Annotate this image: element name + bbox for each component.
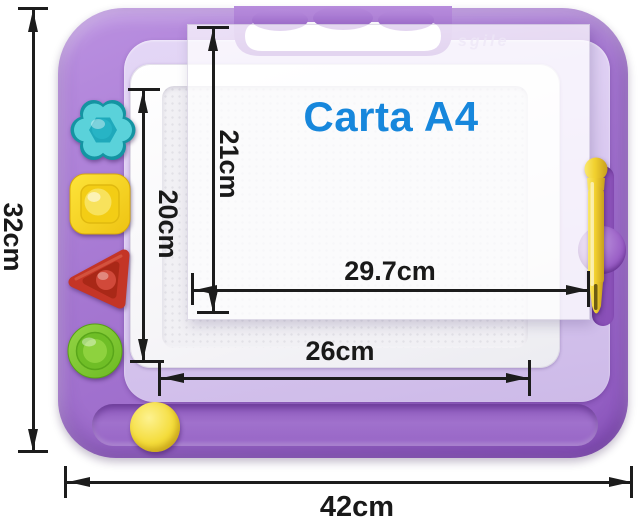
square-stamp-icon [68,172,132,236]
pen-cap-ball [585,158,608,181]
arrow-down-icon [28,429,38,451]
a4-sheet-title: Carta A4 [268,94,514,144]
a4-sheet-overlay [187,24,590,320]
arrow-up-icon [28,10,38,32]
circle-stamp-icon [66,322,124,380]
arrow-right-icon [609,477,631,487]
stylus-pen [577,156,613,324]
product-dimension-image: sgile [0,0,640,520]
tick [64,466,67,498]
dimension-line [32,9,35,451]
eraser-slider-knob [130,402,180,452]
tick [18,7,48,10]
arrow-left-icon [68,477,90,487]
triangle-stamp-icon [66,246,132,310]
dim-board-width-label: 42cm [295,492,419,520]
dimension-line [67,481,632,484]
tick [18,450,48,453]
tick [630,466,633,498]
dim-board-height-label: 32cm [0,189,28,285]
flower-stamp-icon [70,100,136,160]
